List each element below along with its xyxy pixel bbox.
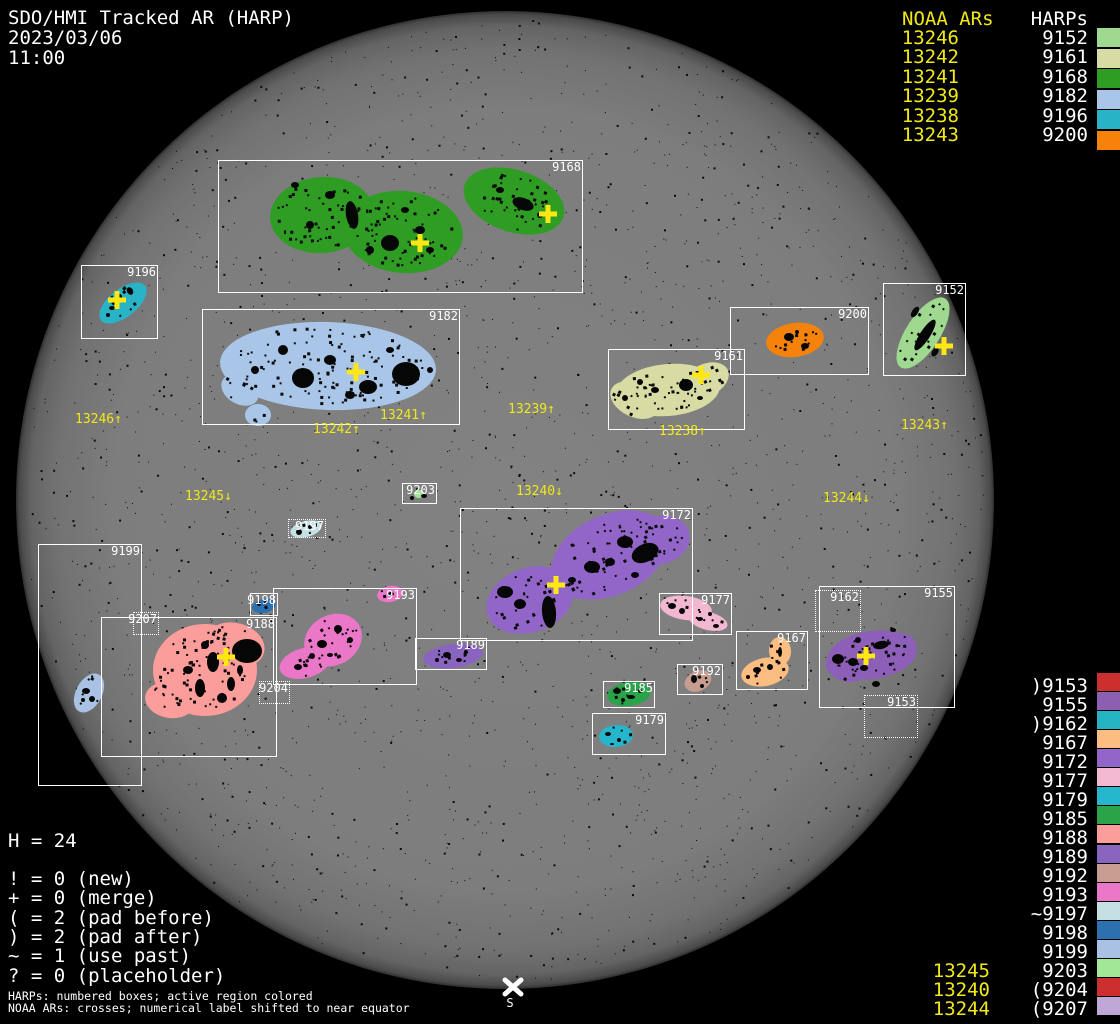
south-pole-label: S — [506, 996, 513, 1010]
noaa-cross — [857, 647, 875, 665]
harp-tracking-figure: 9168919691829161920091529203919791729177… — [0, 0, 1120, 1024]
south-pole-x-marker — [505, 980, 521, 994]
noaa-cross — [411, 234, 429, 252]
markers-layer: S — [0, 0, 1120, 1024]
noaa-cross — [108, 291, 126, 309]
noaa-cross — [692, 366, 710, 384]
noaa-cross — [547, 576, 565, 594]
noaa-cross — [935, 337, 953, 355]
noaa-crosses — [108, 205, 953, 666]
noaa-cross — [217, 648, 235, 666]
noaa-cross — [539, 205, 557, 223]
noaa-cross — [347, 363, 365, 381]
